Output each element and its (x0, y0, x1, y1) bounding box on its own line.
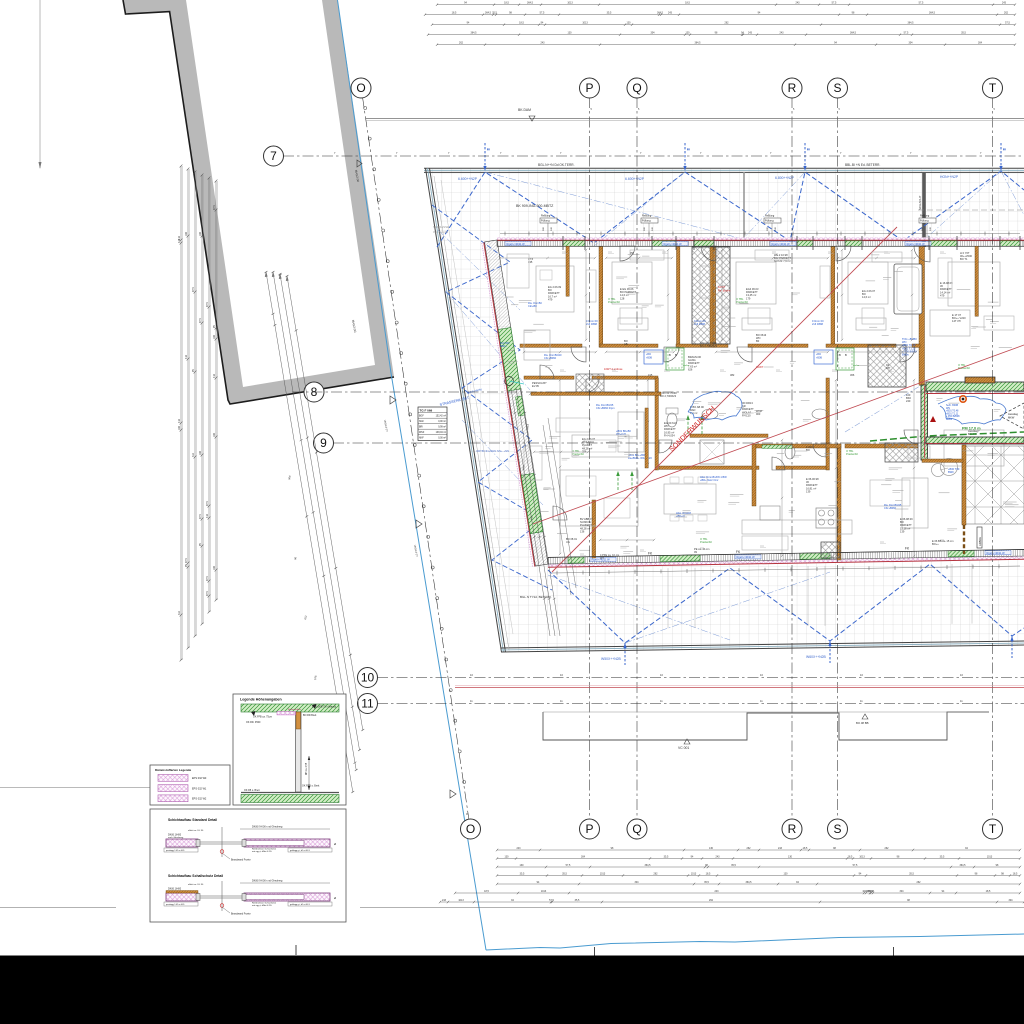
svg-text:304: 304 (635, 881, 640, 884)
svg-text:OK FB o. Brett: OK FB o. Brett (244, 789, 260, 792)
svg-text:14T 3T²: 14T 3T² (952, 319, 961, 323)
svg-text:9,99 m²: 9,99 m² (438, 426, 446, 429)
svg-text:Ckr+B0: Ckr+B0 (528, 304, 537, 308)
svg-text:57,5: 57,5 (853, 864, 858, 867)
svg-text:NGF: NGF (419, 421, 424, 423)
svg-text:18,5: 18,5 (986, 890, 991, 893)
svg-text:EPS 032 W0: EPS 032 W0 (192, 777, 207, 780)
svg-text:BGF: BGF (419, 416, 424, 418)
svg-text:243: 243 (715, 890, 720, 893)
svg-text:PM 17,0 m: PM 17,0 m (962, 427, 981, 431)
svg-text:B0: B0 (756, 339, 760, 343)
svg-text:▮▮: ▮▮ (1003, 148, 1006, 151)
svg-text:Q: Q (632, 822, 641, 836)
svg-text:Legende Höhenangaben: Legende Höhenangaben (240, 698, 282, 702)
svg-text:35,5: 35,5 (940, 855, 945, 858)
svg-text:WT: WT (600, 556, 604, 560)
svg-text:382: 382 (730, 373, 735, 377)
svg-text:B: B (669, 353, 671, 357)
svg-text:416: 416 (178, 418, 181, 423)
svg-text:BO 2,700/623: BO 2,700/623 (660, 394, 677, 398)
svg-text:BRI: BRI (419, 427, 423, 429)
svg-text:179: 179 (746, 296, 751, 300)
svg-text:▮▮: ▮▮ (687, 148, 690, 151)
svg-text:97,5: 97,5 (199, 318, 202, 323)
svg-text:UG: UG (566, 540, 570, 544)
svg-text:243: 243 (870, 890, 875, 893)
svg-text:Reßfung: Reßfung (541, 215, 551, 218)
svg-text:T: T (989, 822, 997, 836)
svg-text:O: O (356, 81, 365, 95)
svg-text:18,5: 18,5 (504, 2, 509, 5)
svg-text:180: 180 (213, 432, 216, 437)
svg-text:364,5: 364,5 (645, 864, 652, 867)
svg-text:Schichtaufbau Schallschutz Det: Schichtaufbau Schallschutz Detail (168, 874, 223, 878)
svg-text:Ausstieg: Ausstieg (1008, 412, 1019, 416)
svg-text:626: 626 (688, 367, 693, 371)
svg-text:BM0s: BM0s (946, 418, 953, 421)
svg-text:240: 240 (906, 399, 911, 403)
svg-text:BO RD Brett: BO RD Brett (303, 714, 317, 717)
svg-text:DK06 1/H00: DK06 1/H00 (168, 834, 182, 837)
svg-text:RH ca. 2,55: RH ca. 2,55 (306, 762, 308, 775)
svg-text:18,5: 18,5 (685, 2, 690, 5)
svg-text:1013: 1013 (691, 872, 697, 875)
svg-text:OK RD. F500: OK RD. F500 (246, 721, 261, 724)
svg-text:Re: Boden: Re: Boden (718, 288, 731, 292)
svg-text:1013: 1013 (582, 22, 588, 25)
svg-text:130: 130 (788, 855, 793, 858)
svg-text:ant agg t, dNat 0 D5: ant agg t, dNat 0 D5 (252, 904, 272, 907)
svg-text:Füllung: Füllung (765, 219, 774, 223)
svg-text:BW0: BW0 (948, 470, 954, 474)
svg-text:Reßfung: Reßfung (920, 215, 930, 218)
svg-text:CKr+B060: CKr+B060 (544, 356, 557, 360)
svg-text:VC 001: VC 001 (678, 746, 689, 750)
svg-text:262: 262 (1004, 12, 1009, 15)
svg-text:R: R (788, 822, 797, 836)
svg-text:NNF: NNF (419, 438, 424, 440)
svg-text:243: 243 (748, 32, 753, 35)
svg-text:Schichtaufbau Standard Detail: Schichtaufbau Standard Detail (168, 818, 217, 822)
svg-text:SCHACHT: SCHACHT (918, 195, 922, 210)
svg-text:35,5: 35,5 (575, 899, 580, 902)
svg-text:243: 243 (442, 899, 447, 902)
svg-text:14,6 m²: 14,6 m² (862, 295, 871, 299)
svg-text:139: 139 (900, 529, 905, 533)
svg-text:180: 180 (199, 450, 202, 455)
svg-text:BK 909-IND-900-MBTZ: BK 909-IND-900-MBTZ (516, 204, 554, 208)
svg-text:Prackerb0: Prackerb0 (846, 452, 858, 456)
svg-text:97,5: 97,5 (206, 591, 209, 596)
svg-text:1013: 1013 (987, 855, 993, 858)
svg-text:35,5: 35,5 (562, 872, 567, 875)
svg-text:⌀: ⌀ (334, 896, 336, 900)
svg-text:180: 180 (199, 231, 202, 236)
svg-text:0,00 m²: 0,00 m² (438, 437, 446, 440)
svg-text:57,5: 57,5 (549, 899, 554, 902)
svg-text:B: B (839, 353, 841, 357)
svg-text:HON++N2P: HON++N2P (940, 175, 959, 179)
svg-text:312: 312 (192, 452, 195, 457)
svg-text:57,5: 57,5 (904, 32, 909, 35)
svg-text:18,5: 18,5 (848, 855, 853, 858)
svg-text:130: 130 (627, 22, 632, 25)
svg-text:130: 130 (505, 855, 510, 858)
svg-text:138,04 m²: 138,04 m² (436, 431, 447, 434)
svg-text:EPS 032 W1: EPS 032 W1 (192, 787, 207, 790)
svg-text:243: 243 (668, 12, 673, 15)
svg-text:10: 10 (361, 671, 375, 685)
svg-text:416: 416 (213, 373, 216, 378)
svg-text:Bodenaufbau: Bodenaufbau (288, 709, 302, 711)
svg-text:Füllung: Füllung (642, 219, 651, 223)
svg-text:364,5: 364,5 (657, 12, 664, 15)
svg-text:262: 262 (709, 899, 714, 902)
svg-text:B: B (675, 353, 677, 357)
svg-text:Prackerb0: Prackerb0 (700, 540, 712, 544)
svg-text:BBL.BI +N Ed. BETERR.: BBL.BI +N Ed. BETERR. (845, 163, 880, 167)
svg-text:2x6 0/BM: 2x6 0/BM (586, 322, 597, 326)
svg-text:243: 243 (780, 32, 785, 35)
svg-text:364,5: 364,5 (471, 32, 478, 35)
svg-text:6.600++N2P: 6.600++N2P (458, 177, 478, 181)
svg-text:Reßfung: Reßfung (765, 215, 775, 218)
svg-text:BK.DAM: BK.DAM (518, 108, 531, 112)
svg-text:97,5: 97,5 (206, 501, 209, 506)
svg-text:R: R (788, 81, 797, 95)
svg-text:243: 243 (716, 855, 721, 858)
svg-text:O: O (466, 822, 475, 836)
svg-text:262: 262 (917, 881, 922, 884)
svg-text:⌀: ⌀ (334, 842, 336, 846)
svg-text:nach Gfredereg: nach Gfredereg (168, 836, 184, 839)
svg-text:ponttagg 1.05 m 005: ponttagg 1.05 m 005 (166, 849, 185, 852)
svg-text:Rgel H 40/11 W: Rgel H 40/11 W (664, 242, 683, 246)
svg-text:BO T1: BO T1 (960, 257, 968, 261)
svg-text:1013: 1013 (541, 890, 547, 893)
svg-text:364,5: 364,5 (850, 32, 857, 35)
svg-text:Rgel H 40/11 W: Rgel H 40/11 W (907, 242, 926, 246)
svg-text:MKW: MKW (1008, 415, 1015, 419)
svg-text:BO++: BO++ (932, 542, 939, 546)
svg-text:DK06/ 9-K00 s nd Gfredereg: DK06/ 9-K00 s nd Gfredereg (252, 880, 283, 883)
svg-text:304: 304 (909, 42, 914, 45)
svg-text:TERRASSE: TERRASSE (433, 225, 449, 229)
svg-text:130: 130 (568, 32, 573, 35)
svg-text:180: 180 (213, 334, 216, 339)
svg-text:TG F 069: TG F 069 (420, 409, 433, 413)
svg-text:T: T (989, 81, 997, 95)
svg-text:97,5: 97,5 (206, 302, 209, 307)
svg-text:416: 416 (185, 354, 188, 359)
svg-text:W60X++N2B: W60X++N2B (806, 655, 827, 659)
svg-text:304: 304 (900, 890, 905, 893)
svg-text:6.600++N2P: 6.600++N2P (625, 177, 645, 181)
svg-text:ORTB NN+NNN NN+ +NN: ORTB NN+NNN NN+ +NN (476, 449, 509, 453)
svg-text:416: 416 (178, 238, 181, 243)
svg-text:ponttagg 1.05 m 005: ponttagg 1.05 m 005 (166, 903, 185, 906)
svg-text:AB: AB (624, 342, 628, 346)
svg-text:364,5: 364,5 (485, 12, 492, 15)
svg-text:304: 304 (1009, 899, 1014, 902)
svg-text:BO: BO (806, 448, 810, 452)
svg-text:479: 479 (548, 297, 553, 301)
svg-text:BSP+: BSP+ (500, 344, 507, 348)
svg-text:2x6 0/BM: 2x6 0/BM (812, 322, 823, 326)
svg-text:093.02+N.09: 093.02+N.09 (433, 230, 448, 234)
svg-text:CKr+B060: CKr+B060 (884, 506, 897, 510)
svg-text:S: S (833, 81, 841, 95)
svg-text:BO.08 BB: BO.08 BB (856, 721, 869, 725)
svg-text:35,5: 35,5 (731, 864, 736, 867)
svg-text:364,5: 364,5 (746, 881, 753, 884)
svg-text:+B0B: +B0B (646, 356, 652, 359)
svg-text:Rgel H 40/11 W: Rgel H 40/11 W (507, 242, 526, 246)
svg-text:35,5: 35,5 (607, 12, 612, 15)
svg-text:ADBRE: ADBRE (978, 537, 982, 546)
svg-text:35,5: 35,5 (961, 32, 966, 35)
svg-text:1013: 1013 (600, 872, 606, 875)
svg-text:CKr+B060 0/pm: CKr+B060 0/pm (596, 406, 615, 410)
svg-text:EPS 032 W2: EPS 032 W2 (192, 798, 207, 801)
svg-text:130: 130 (709, 847, 714, 850)
svg-text:243: 243 (778, 847, 783, 850)
svg-text:180: 180 (213, 565, 216, 570)
svg-text:OK FFB ca. 75cm: OK FFB ca. 75cm (253, 716, 272, 719)
svg-text:BGL.N++N Dd OK.TERR.: BGL.N++N Dd OK.TERR. (538, 163, 575, 167)
svg-text:2x6 0/BM: 2x6 0/BM (694, 322, 705, 326)
svg-text:+B0B: +B0B (816, 356, 822, 359)
svg-text:304: 304 (581, 855, 586, 858)
svg-text:57,5: 57,5 (540, 12, 545, 15)
svg-text:35,5: 35,5 (664, 855, 669, 858)
svg-text:+BD+N: +BD+N (676, 514, 685, 518)
svg-text:gablogg g t, d5 nt 00 5: gablogg g t, d5 nt 00 5 (290, 903, 311, 906)
svg-text:130: 130 (520, 864, 525, 867)
svg-text:416: 416 (206, 513, 209, 518)
svg-text:1013: 1013 (859, 855, 865, 858)
svg-text:180: 180 (185, 231, 188, 236)
svg-text:Prackerb0: Prackerb0 (608, 300, 620, 304)
svg-text:262: 262 (459, 42, 464, 45)
svg-text:479: 479 (940, 293, 945, 297)
svg-text:18,5: 18,5 (452, 12, 457, 15)
svg-text:364,5: 364,5 (908, 22, 915, 25)
svg-text:304: 304 (978, 42, 983, 45)
svg-text:Ds+BM0+ W0++K20: Ds+BM0+ W0++K20 (628, 456, 652, 460)
svg-text:effetti ca. DL 30: effetti ca. DL 30 (188, 883, 204, 886)
svg-text:P: P (585, 81, 593, 95)
svg-text:35,5: 35,5 (909, 872, 914, 875)
svg-text:um0m: um0m (683, 365, 689, 367)
svg-text:97,5: 97,5 (185, 558, 188, 563)
svg-text:FH 4,034: FH 4,034 (664, 433, 675, 437)
svg-text:EV.05: EV.05 (532, 384, 539, 388)
svg-text:243: 243 (517, 847, 522, 850)
svg-text:35,5: 35,5 (704, 881, 709, 884)
svg-text:312: 312 (178, 610, 181, 615)
svg-text:364,5: 364,5 (960, 864, 967, 867)
svg-text:11: 11 (361, 697, 374, 711)
svg-text:366: 366 (850, 373, 855, 377)
svg-text:W0+K20: W0+K20 (616, 432, 627, 436)
svg-text:97,5: 97,5 (199, 514, 202, 519)
svg-text:18,5: 18,5 (706, 872, 711, 875)
svg-text:Brandwand Fronte: Brandwand Fronte (231, 859, 251, 862)
svg-text:S: S (833, 822, 841, 836)
svg-text:Füllung: Füllung (541, 219, 550, 223)
svg-text:Füllung: Füllung (920, 219, 929, 223)
svg-text:18,5: 18,5 (1013, 872, 1018, 875)
svg-text:Rgel H 40/11 W: Rgel H 40/11 W (772, 242, 791, 246)
svg-text:243: 243 (541, 42, 546, 45)
svg-text:415: 415 (648, 373, 653, 377)
svg-text:97,5: 97,5 (192, 287, 195, 292)
svg-text:Dämmstoffarten Legende: Dämmstoffarten Legende (155, 768, 192, 772)
svg-text:1013: 1013 (567, 2, 573, 5)
svg-text:P: P (585, 822, 593, 836)
svg-text:903: 903 (756, 412, 761, 416)
svg-text:128: 128 (620, 296, 625, 300)
svg-text:187: 187 (886, 366, 891, 370)
svg-text:DK06 1/H00: DK06 1/H00 (168, 888, 182, 891)
svg-text:97,5: 97,5 (206, 576, 209, 581)
svg-text:Rgel H 40/11 W: Rgel H 40/11 W (987, 551, 1006, 555)
svg-text:243: 243 (796, 2, 801, 5)
svg-text:18,5: 18,5 (519, 22, 524, 25)
svg-text:WNF: WNF (419, 432, 425, 434)
svg-text:136: 136 (580, 529, 585, 533)
svg-text:DK06/ 9-K00 s nd Gfredereg: DK06/ 9-K00 s nd Gfredereg (252, 826, 283, 829)
svg-text:▮▮: ▮▮ (487, 148, 490, 151)
svg-text:gablogg g t, d5 nt 00 5: gablogg g t, d5 nt 00 5 (290, 849, 311, 852)
svg-text:10W7 A ardrose: 10W7 A ardrose (604, 367, 623, 371)
svg-text:97,5: 97,5 (213, 205, 216, 210)
svg-text:35,5: 35,5 (520, 872, 525, 875)
svg-text:1013: 1013 (458, 899, 464, 902)
svg-text:18,5: 18,5 (803, 847, 808, 850)
svg-text:FH 120: FH 120 (742, 413, 751, 417)
svg-text:BGL.N TY2d. BETERR.: BGL.N TY2d. BETERR. (520, 595, 552, 599)
svg-text:▮▮: ▮▮ (807, 148, 810, 151)
svg-text:OK RFB o. Brett: OK RFB o. Brett (302, 785, 320, 788)
svg-text:0,00 m²: 0,00 m² (438, 420, 446, 423)
svg-text:364,5: 364,5 (929, 12, 936, 15)
svg-text:ant agg t, dNat 0 D5: ant agg t, dNat 0 D5 (252, 850, 272, 853)
svg-text:57,5: 57,5 (566, 864, 571, 867)
svg-text:304: 304 (651, 32, 656, 35)
svg-text:um0m: um0m (853, 365, 859, 367)
svg-text:57,5: 57,5 (919, 2, 924, 5)
svg-text:Reßfung: Reßfung (642, 215, 652, 218)
svg-text:364,5: 364,5 (527, 2, 534, 5)
svg-text:9: 9 (320, 436, 327, 450)
svg-text:139: 139 (806, 489, 811, 493)
svg-text:262: 262 (725, 22, 730, 25)
svg-text:effetti ca. DL 30: effetti ca. DL 30 (188, 829, 204, 832)
svg-text:152,42 m²: 152,42 m² (436, 415, 447, 418)
svg-text:180: 180 (178, 425, 181, 430)
svg-text:262: 262 (885, 847, 890, 850)
svg-text:364,5: 364,5 (695, 42, 702, 45)
svg-text:W50X++N2B: W50X++N2B (601, 657, 622, 661)
svg-text:7: 7 (270, 149, 277, 163)
svg-text:130: 130 (784, 872, 789, 875)
svg-text:BO 2 T/BM623: BO 2 T/BM623 (700, 344, 718, 348)
svg-text:35,5: 35,5 (492, 12, 497, 15)
svg-text:243: 243 (1002, 2, 1007, 5)
svg-text:Q: Q (632, 81, 641, 95)
svg-text:+BD+ Netz Omr: +BD+ Netz Omr (700, 478, 719, 482)
svg-text:130: 130 (686, 32, 691, 35)
svg-text:Brandwand Fronte: Brandwand Fronte (231, 913, 251, 916)
svg-text:B: B (845, 353, 847, 357)
svg-text:57,5: 57,5 (1005, 22, 1010, 25)
svg-text:57,5: 57,5 (832, 2, 837, 5)
svg-text:Rgel H 40/11 W: Rgel H 40/11 W (737, 555, 756, 559)
svg-text:18,5: 18,5 (484, 890, 489, 893)
svg-text:BM0s: BM0s (902, 353, 909, 357)
svg-text:262: 262 (654, 872, 659, 875)
svg-text:262: 262 (747, 847, 752, 850)
